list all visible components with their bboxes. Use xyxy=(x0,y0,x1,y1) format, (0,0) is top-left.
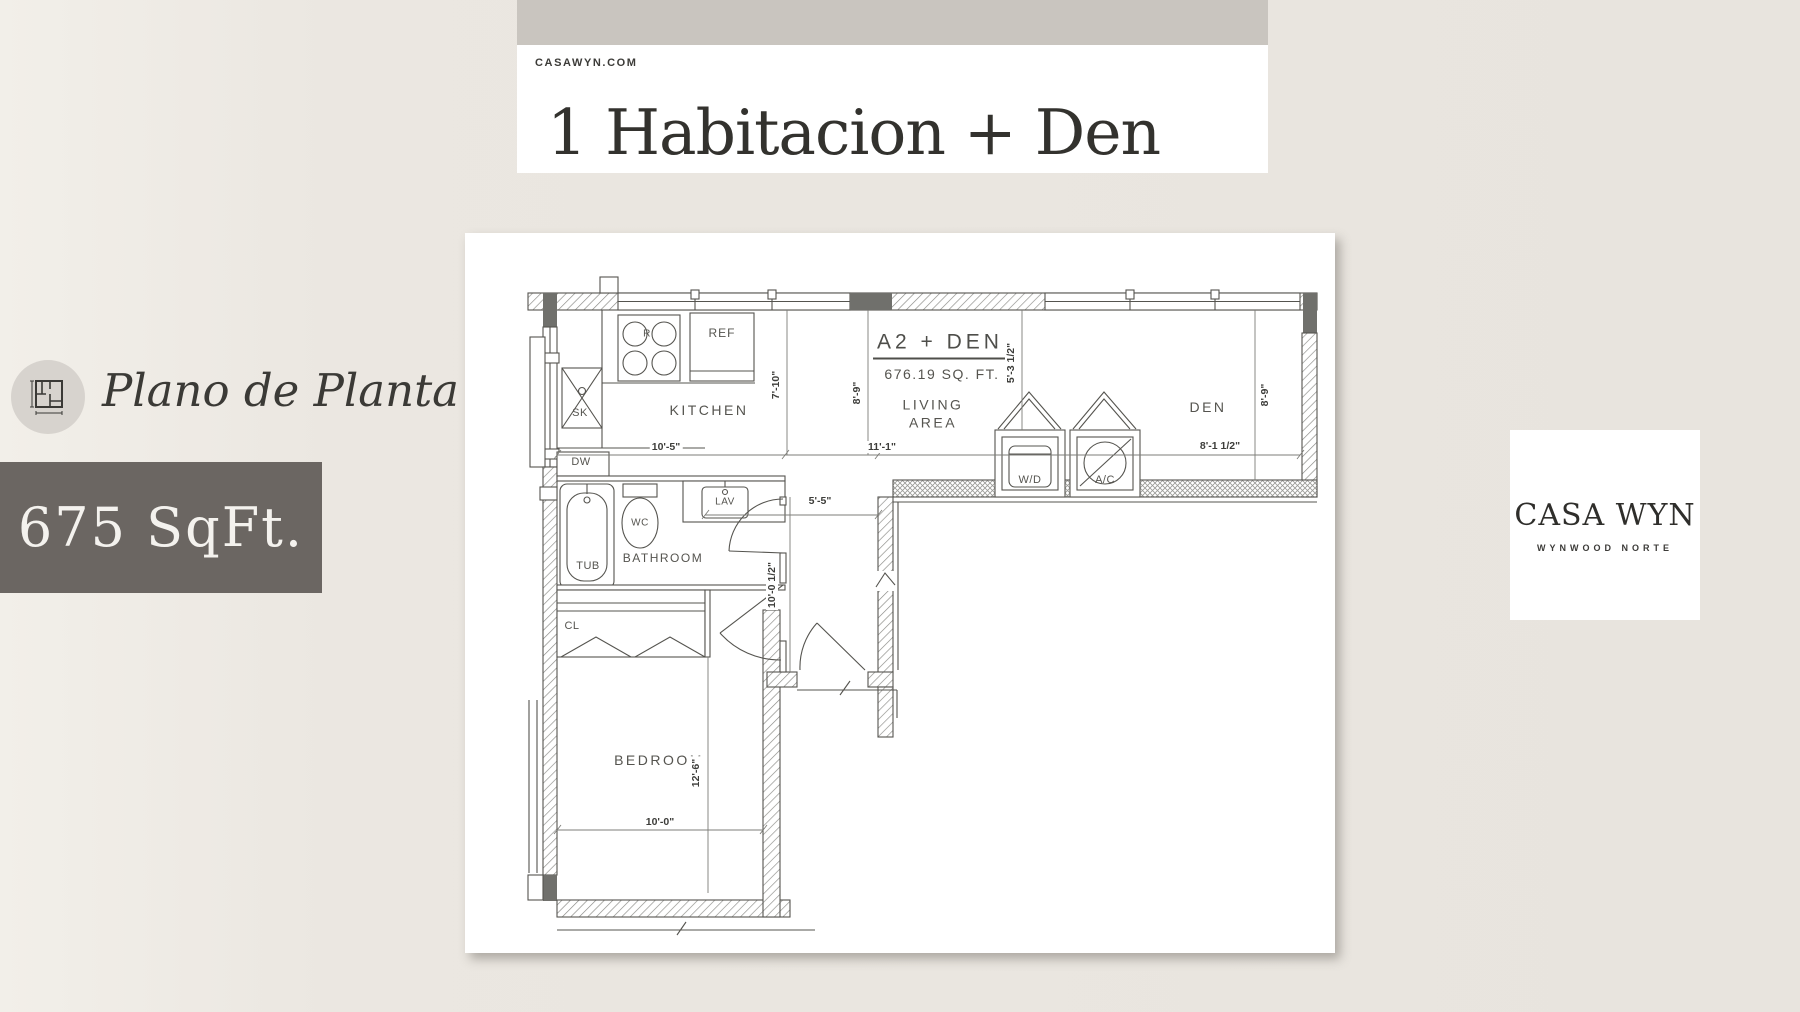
lavatory-label: LAV xyxy=(715,497,735,508)
dim-entry-depth: 10'-0 1/2" xyxy=(766,560,778,610)
fridge-label: REF xyxy=(709,326,736,340)
dim-living-width: 11'-1" xyxy=(866,441,898,453)
area-badge-label: 675 SqFt. xyxy=(18,496,304,559)
dim-den-width: 8'-1 1/2" xyxy=(1198,440,1242,452)
dim-den-depth: 8'-9" xyxy=(1259,382,1271,409)
page-title: 1 Habitacion + Den xyxy=(547,101,1160,164)
dim-living-depth: 8'-9" xyxy=(851,380,863,407)
range-label: R xyxy=(643,329,651,340)
floorplan-icon xyxy=(28,377,68,417)
bathroom-label: BATHROOM xyxy=(623,551,703,565)
dim-bedroom-depth: 12'-6" xyxy=(690,757,702,790)
kitchen-label: KITCHEN xyxy=(670,402,749,418)
dim-kitchen-width: 10'-5" xyxy=(650,441,683,453)
site-url: CASAWYN.COM xyxy=(535,57,638,69)
dim-kitchen-depth: 7'-10" xyxy=(770,369,782,402)
washer-dryer-label: W/D xyxy=(1019,474,1042,486)
den-label: DEN xyxy=(1189,399,1226,415)
tub-label: TUB xyxy=(576,560,600,572)
flyer-page: { "header": { "site": "CASAWYN.COM", "ti… xyxy=(0,0,1800,1012)
unit-area-label: 676.19 SQ. FT. xyxy=(884,366,999,382)
header-card: CASAWYN.COM 1 Habitacion + Den xyxy=(517,45,1268,173)
living-area-label: LIVING AREA xyxy=(903,397,964,432)
ac-label: A/C xyxy=(1095,474,1115,486)
toilet-label: WC xyxy=(631,518,649,529)
header-accent-band xyxy=(517,0,1268,45)
brand-tagline: WYNWOOD NORTE xyxy=(1537,543,1673,553)
dim-bedroom-width: 10'-0" xyxy=(644,816,677,828)
dim-entry-width: 5'-5" xyxy=(807,495,834,507)
brand-name: CASA WYN xyxy=(1514,498,1695,533)
sink-label: SK xyxy=(572,407,588,419)
area-badge: 675 SqFt. xyxy=(0,462,322,593)
plan-section-title: Plano de Planta xyxy=(102,364,459,417)
dim-laundry-depth: 5'-3 1/2" xyxy=(1005,341,1017,385)
closet-label: CL xyxy=(564,620,579,632)
floorplan-panel: A2 + DEN 676.19 SQ. FT. KITCHEN LIVING A… xyxy=(465,233,1335,953)
dishwasher-label: DW xyxy=(571,456,590,468)
floorplan-icon-badge xyxy=(11,360,85,434)
brand-card: CASA WYN WYNWOOD NORTE xyxy=(1510,430,1700,620)
unit-name-label: A2 + DEN xyxy=(873,331,1007,360)
